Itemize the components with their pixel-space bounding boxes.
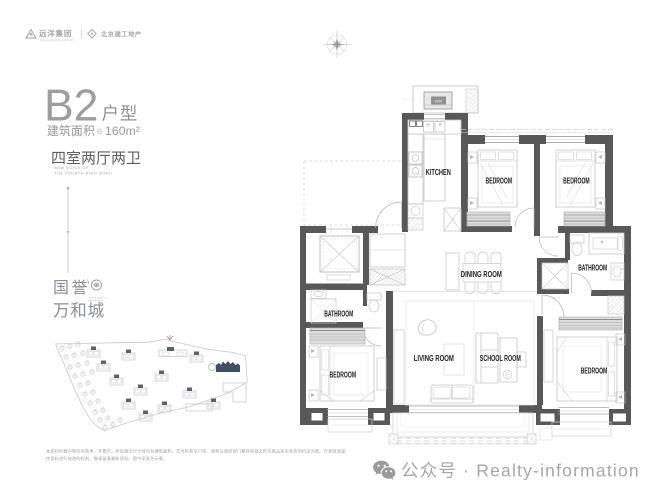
svg-text:BEDROOM: BEDROOM (330, 371, 357, 380)
svg-text:B2: B2 (44, 85, 98, 125)
svg-text:VRV: VRV (434, 99, 442, 104)
svg-text:北京建工地产: 北京建工地产 (101, 30, 142, 38)
svg-text:160m²: 160m² (105, 124, 140, 138)
svg-text:NEW VOICE OF: NEW VOICE OF (54, 165, 89, 170)
svg-text:传资料进行修改的权利。敬请留意最新资料。图中家具为示意。: 传资料进行修改的权利。敬请留意最新资料。图中家具为示意。 (46, 455, 167, 462)
svg-text:建筑面积: 建筑面积 (47, 124, 95, 138)
svg-text:KITCHEN: KITCHEN (426, 168, 451, 177)
svg-text:LIVING ROOM: LIVING ROOM (414, 354, 454, 363)
svg-text:BATHROOM: BATHROOM (324, 310, 353, 319)
svg-text:SINO-OCEAN GROUP: SINO-OCEAN GROUP (40, 38, 74, 42)
svg-text:CAPITAL HONOR: CAPITAL HONOR (88, 297, 107, 300)
svg-text:户型: 户型 (102, 104, 139, 124)
svg-text:THE FOURTH RING ROAD: THE FOURTH RING ROAD (54, 171, 112, 176)
svg-text:远洋集团: 远洋集团 (39, 28, 72, 38)
svg-text:WANHE CITY: WANHE CITY (88, 300, 103, 303)
svg-text:DINING ROOM: DINING ROOM (461, 270, 502, 279)
svg-text:BEDROOM: BEDROOM (563, 177, 590, 186)
svg-text:BATHROOM: BATHROOM (578, 263, 607, 272)
svg-text:BEDROOM: BEDROOM (486, 177, 513, 186)
svg-text:BEDROOM: BEDROOM (581, 366, 608, 375)
svg-text:SCHOOL ROOM: SCHOOL ROOM (480, 354, 521, 363)
svg-text:公众号 · Realty-information: 公众号 · Realty-information (401, 461, 640, 481)
